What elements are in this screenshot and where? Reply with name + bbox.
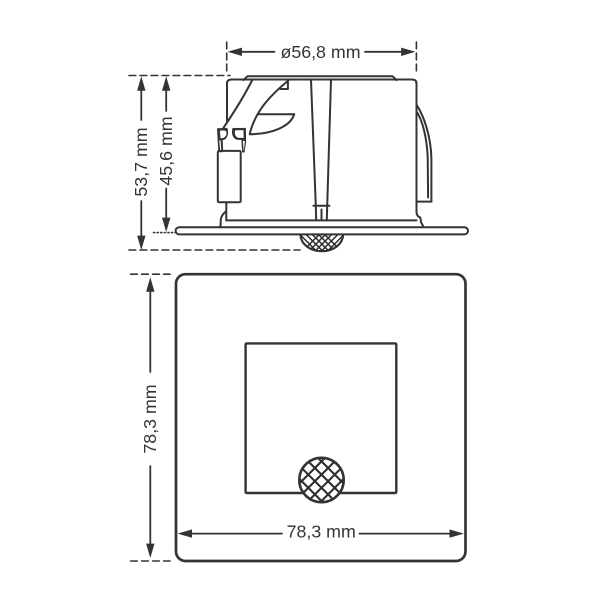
svg-text:53,7 mm: 53,7 mm [131,127,151,196]
svg-text:45,6 mm: 45,6 mm [156,116,176,185]
svg-text:78,3 mm: 78,3 mm [287,522,356,542]
svg-text:ø56,8 mm: ø56,8 mm [280,42,360,62]
svg-text:78,3 mm: 78,3 mm [140,384,160,453]
